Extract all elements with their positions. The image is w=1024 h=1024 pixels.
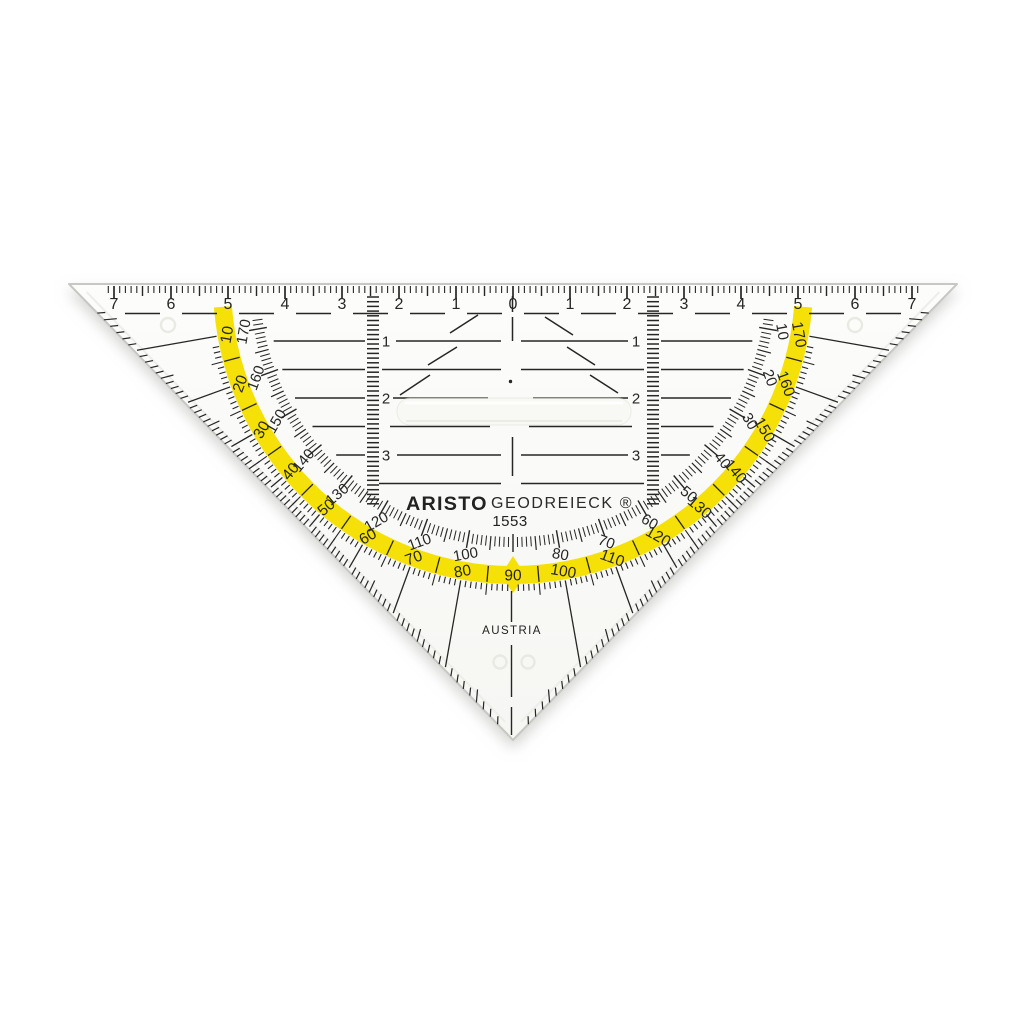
handle-bar <box>397 398 631 425</box>
model-number-text: 1553 <box>479 514 541 529</box>
cm-number: 1 <box>452 296 461 313</box>
product-photo: 7654321012345671122331701601501401301201… <box>0 0 1024 1024</box>
panel-row-number: 1 <box>382 333 390 350</box>
geodreieck-set-square: 7654321012345671122331701601501401301201… <box>0 0 1024 1024</box>
panel-row-number: 3 <box>632 447 640 464</box>
panel-row-number: 1 <box>632 333 640 350</box>
cm-number: 4 <box>281 296 290 313</box>
degree-label-outer: 10 <box>218 324 238 344</box>
triangle-body <box>69 284 957 740</box>
cm-number: 5 <box>794 296 803 313</box>
cm-number: 1 <box>566 296 575 313</box>
cm-number: 4 <box>737 296 746 313</box>
cm-number: 3 <box>338 296 347 313</box>
cm-number: 5 <box>224 296 233 313</box>
panel-row-number: 2 <box>632 390 640 407</box>
cm-number: 2 <box>623 296 632 313</box>
cm-number: 7 <box>908 296 917 313</box>
cm-number: 6 <box>167 296 176 313</box>
cm-number: 6 <box>851 296 860 313</box>
cm-number: 3 <box>680 296 689 313</box>
brand-text: ARISTO <box>406 495 488 514</box>
degree-label-outer: 90 <box>504 568 522 585</box>
cm-number: 2 <box>395 296 404 313</box>
panel-row-number: 2 <box>382 390 390 407</box>
origin-text: AUSTRIA <box>474 626 550 638</box>
panel-row-number: 3 <box>382 447 390 464</box>
cm-number: 7 <box>110 296 119 313</box>
product-name-text: GEODREIECK ® <box>491 496 633 512</box>
degree-label-outer: 80 <box>453 562 473 582</box>
